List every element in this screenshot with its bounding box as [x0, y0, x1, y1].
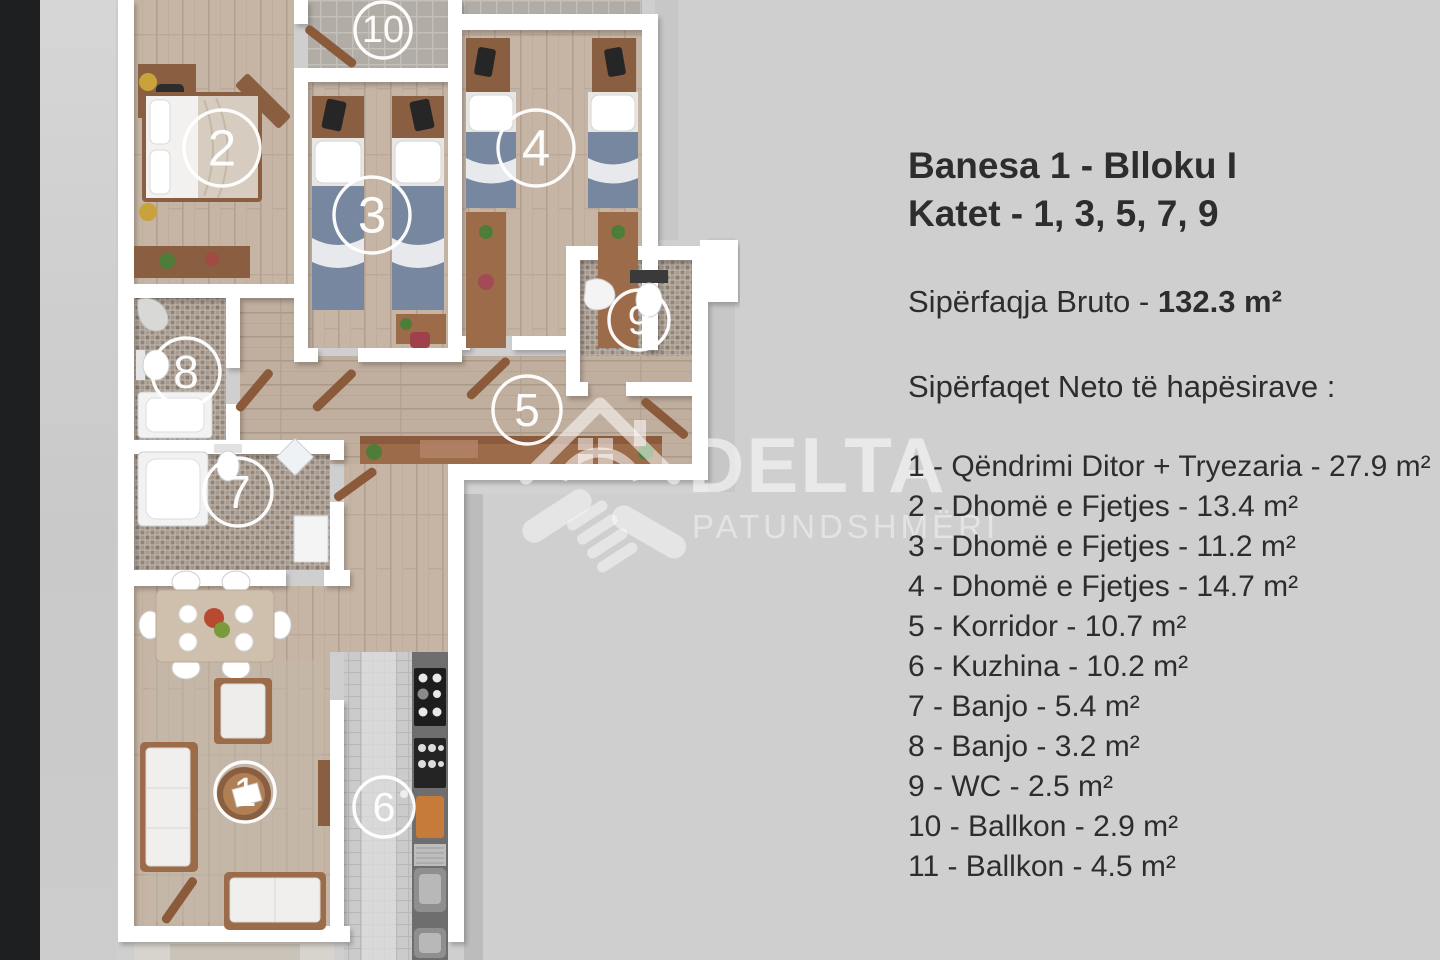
floor-plan: 10234985716 [0, 0, 740, 960]
room-list-item-3: 3 - Dhomë e Fjetjes - 11.2 m² [908, 527, 1440, 567]
room-label-number-2: 2 [208, 120, 236, 177]
room-list-item-5: 5 - Korridor - 10.7 m² [908, 607, 1440, 647]
bedroom2-dresser [134, 246, 250, 278]
room-list: 1 - Qëndrimi Ditor + Tryezaria - 27.9 m²… [908, 447, 1440, 887]
gross-area-line: Sipërfaqja Bruto - 132.3 m² [908, 284, 1282, 320]
net-areas-heading: Sipërfaqet Neto të hapësirave : [908, 369, 1335, 405]
single-bed [466, 92, 516, 208]
single-bed [588, 92, 638, 208]
room-list-item-10: 10 - Ballkon - 2.9 m² [908, 807, 1440, 847]
plan-title: Banesa 1 - Blloku I Katet - 1, 3, 5, 7, … [908, 142, 1237, 238]
room-list-item-11: 11 - Ballkon - 4.5 m² [908, 847, 1440, 887]
hallway-floor [344, 464, 456, 654]
bath7-cabinet [294, 516, 328, 562]
room-label-number-9: 9 [628, 297, 651, 343]
room-label-number-3: 3 [358, 187, 386, 244]
room-label-number-1: 1 [234, 769, 257, 815]
flyer-page: 10234985716 DELTA PATUNDSHMËRI [0, 0, 1440, 960]
gross-area-label: Sipërfaqja Bruto - [908, 284, 1158, 319]
sofa [140, 742, 198, 872]
plan-title-line1: Banesa 1 - Blloku I [908, 142, 1237, 190]
single-bed [312, 138, 364, 310]
room-label-number-5: 5 [514, 384, 540, 436]
room-label-number-8: 8 [173, 346, 199, 398]
loveseat [224, 872, 326, 930]
room-label-number-7: 7 [225, 466, 251, 518]
room-list-item-2: 2 - Dhomë e Fjetjes - 13.4 m² [908, 487, 1440, 527]
single-bed [392, 138, 444, 310]
gross-area-value: 132.3 m² [1158, 284, 1282, 319]
side-table [318, 760, 330, 826]
room-list-item-4: 4 - Dhomë e Fjetjes - 14.7 m² [908, 567, 1440, 607]
stool [139, 203, 157, 221]
room-label-number-10: 10 [362, 9, 404, 51]
room-list-item-8: 8 - Banjo - 3.2 m² [908, 727, 1440, 767]
room-list-item-9: 9 - WC - 2.5 m² [908, 767, 1440, 807]
room-list-item-7: 7 - Banjo - 5.4 m² [908, 687, 1440, 727]
stool [139, 73, 157, 91]
armchair [214, 678, 272, 744]
top-walkway-floor [462, 0, 642, 14]
room-list-item-6: 6 - Kuzhina - 10.2 m² [908, 647, 1440, 687]
room-list-item-1: 1 - Qëndrimi Ditor + Tryezaria - 27.9 m² [908, 447, 1440, 487]
wc9-cistern [630, 270, 668, 283]
plan-title-line2: Katet - 1, 3, 5, 7, 9 [908, 190, 1237, 238]
room-label-number-4: 4 [522, 120, 550, 177]
room-label-number-6: 6 [373, 784, 396, 830]
